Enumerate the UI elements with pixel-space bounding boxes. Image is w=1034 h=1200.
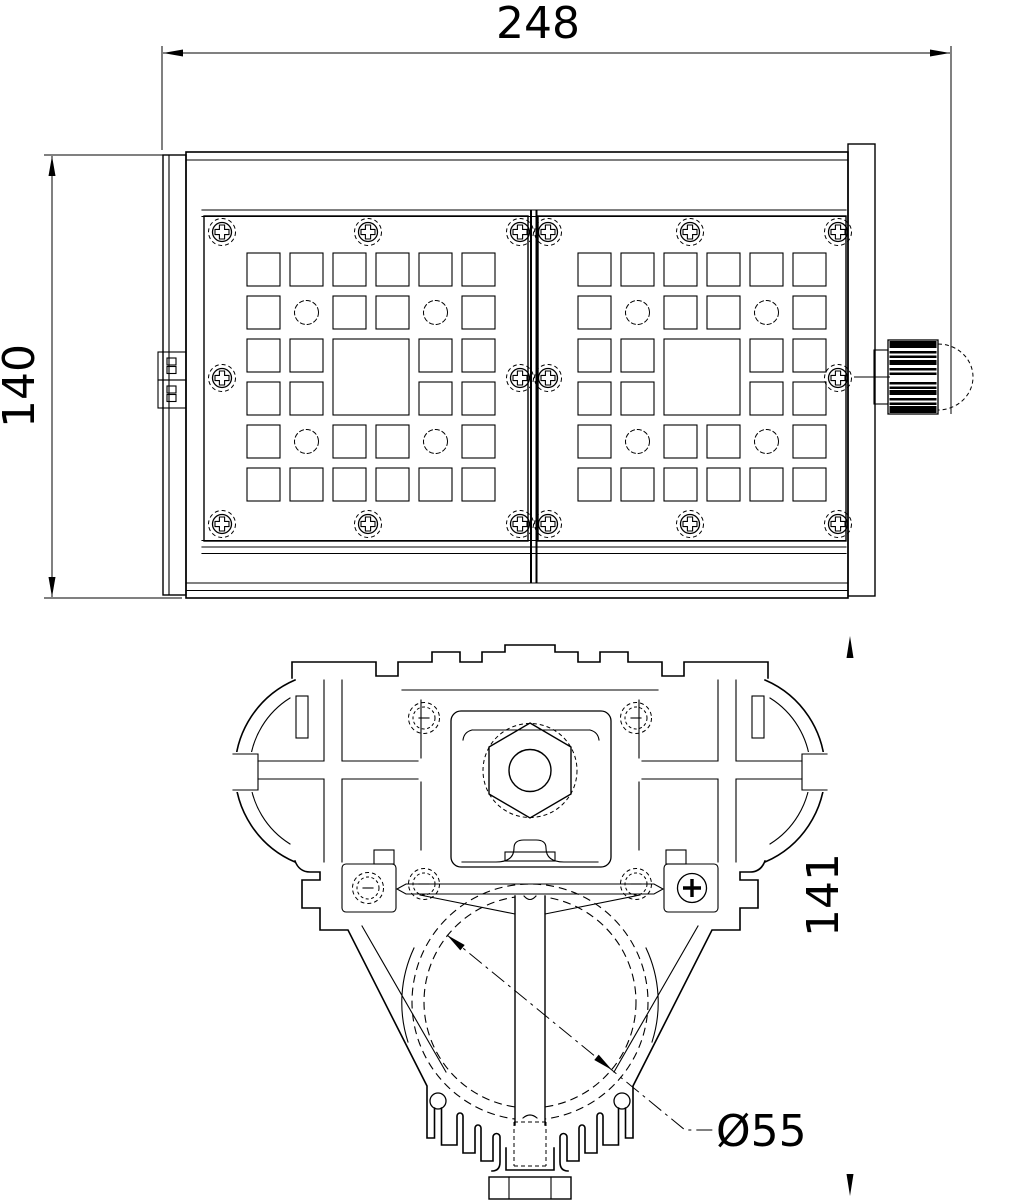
dim-depth-label: 141 [798, 853, 849, 937]
dim-height-label: 140 [0, 344, 45, 428]
technical-drawing-page: 248 140 [0, 0, 1034, 1200]
dim-bore-label: Ø55 [716, 1106, 807, 1157]
luminaire-technical-drawing: 248 140 [0, 0, 1034, 1200]
dim-width-label: 248 [496, 0, 580, 49]
